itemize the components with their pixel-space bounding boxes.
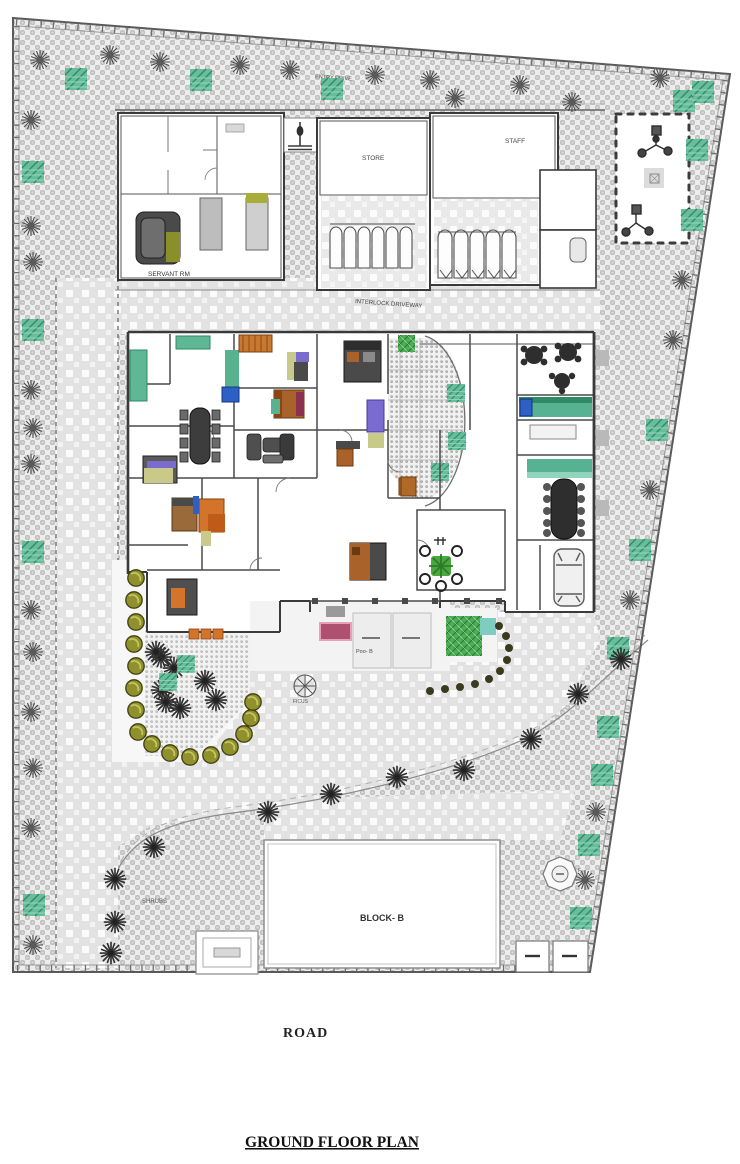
svg-text:STORE: STORE	[362, 155, 385, 162]
svg-text:STAFF: STAFF	[505, 138, 525, 145]
svg-text:FICUS: FICUS	[293, 699, 309, 705]
svg-text:Poo- B: Poo- B	[356, 649, 373, 655]
svg-text:GROUND FLOOR PLAN: GROUND FLOOR PLAN	[245, 1134, 419, 1151]
svg-text:ROAD: ROAD	[283, 1026, 328, 1041]
svg-text:SERVANT RM: SERVANT RM	[148, 271, 190, 278]
svg-text:BLOCK- B: BLOCK- B	[360, 913, 404, 923]
svg-text:SHRUBS: SHRUBS	[142, 899, 167, 905]
